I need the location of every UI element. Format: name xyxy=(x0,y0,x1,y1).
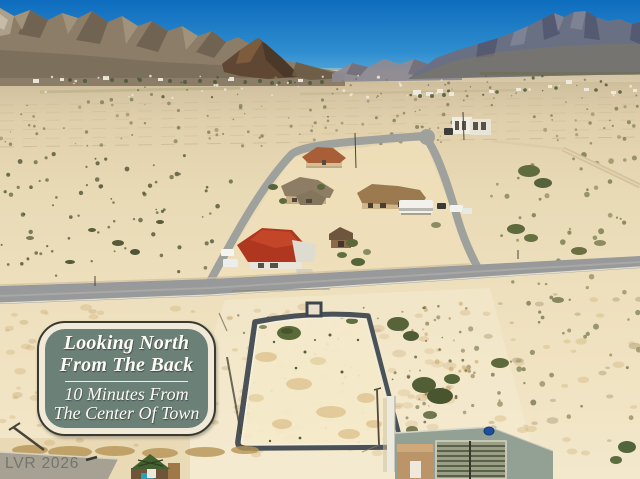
aerial-photo: Looking North From The Back 10 Minutes F… xyxy=(0,0,640,479)
carport xyxy=(436,441,506,479)
info-overlay-box: Looking North From The Back 10 Minutes F… xyxy=(37,321,216,436)
blue-barrel xyxy=(484,427,494,435)
info-line-2: From The Back xyxy=(60,355,194,377)
info-line-4: The Center Of Town xyxy=(54,404,200,423)
info-line-1: Looking North xyxy=(64,333,189,355)
tan-shed xyxy=(397,444,433,479)
info-line-3: 10 Minutes From xyxy=(64,385,188,404)
white-fence xyxy=(387,396,395,472)
rv-trailer xyxy=(399,200,433,215)
info-divider xyxy=(65,381,189,382)
lot-corner-marker xyxy=(307,303,321,316)
info-overlay-inner: Looking North From The Back 10 Minutes F… xyxy=(45,329,208,428)
watermark-text: LVR 2026 xyxy=(5,455,79,473)
